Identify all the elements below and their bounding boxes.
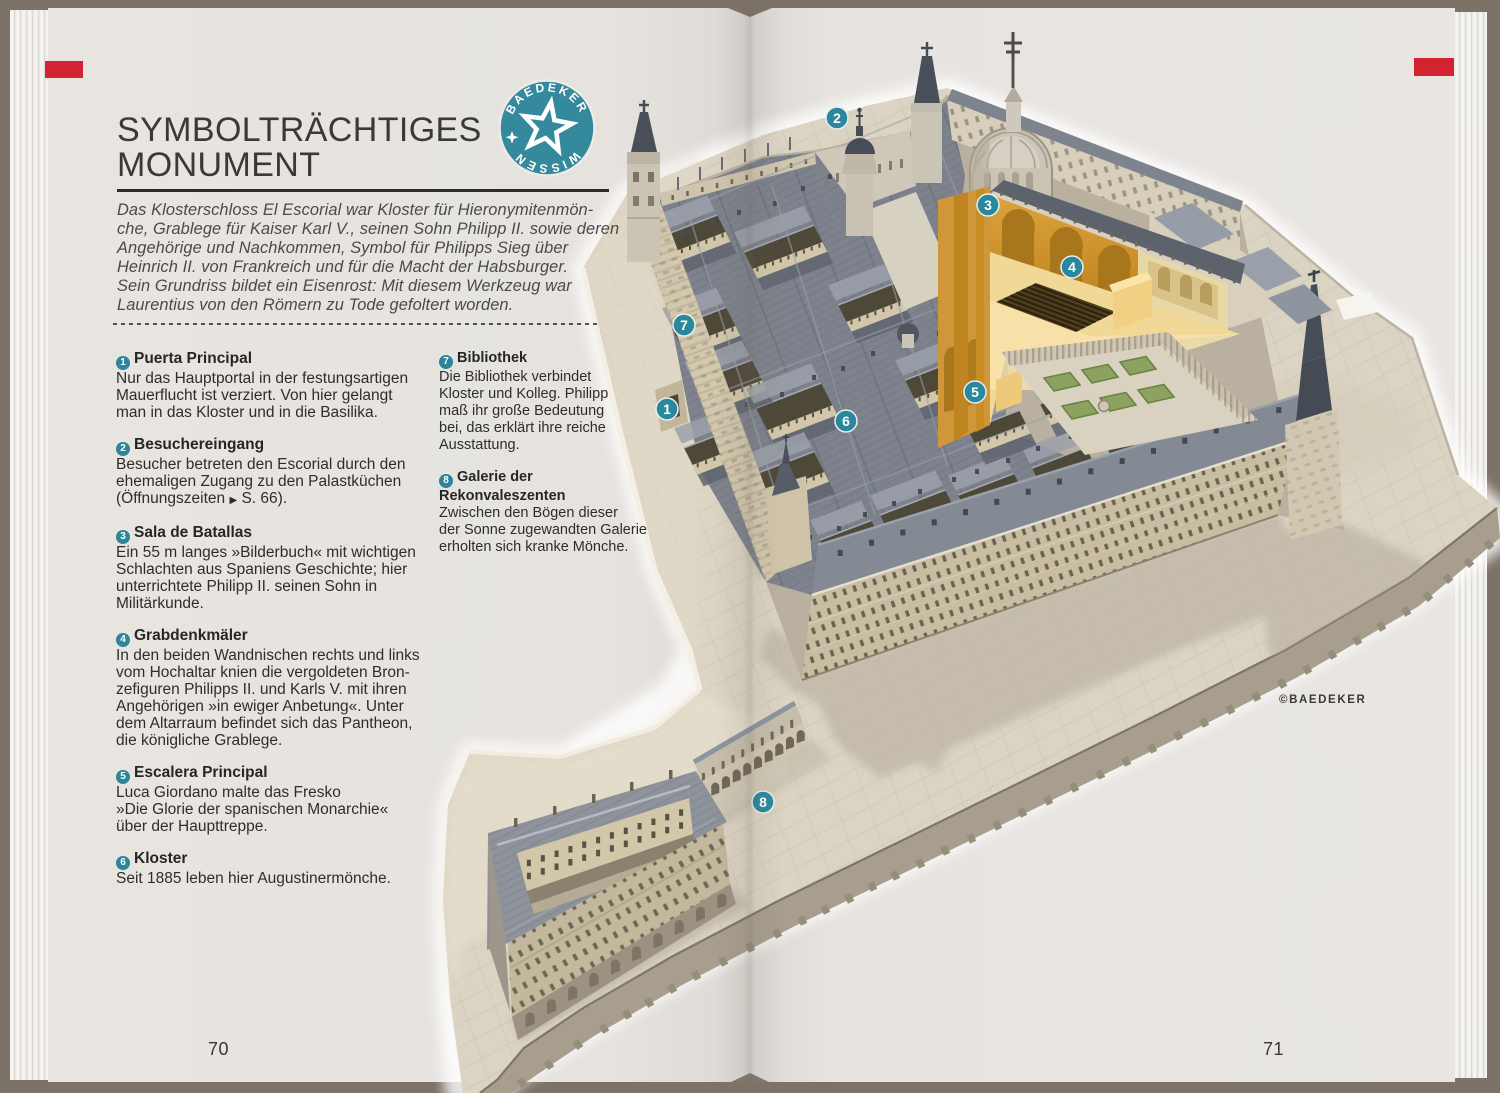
svg-text:5: 5 xyxy=(971,384,979,400)
svg-text:7: 7 xyxy=(680,317,688,333)
svg-text:2: 2 xyxy=(833,110,841,126)
svg-text:3: 3 xyxy=(984,197,992,213)
svg-text:4: 4 xyxy=(1068,259,1076,275)
svg-text:©BAEDEKER: ©BAEDEKER xyxy=(1279,694,1366,706)
svg-text:6: 6 xyxy=(842,413,850,429)
